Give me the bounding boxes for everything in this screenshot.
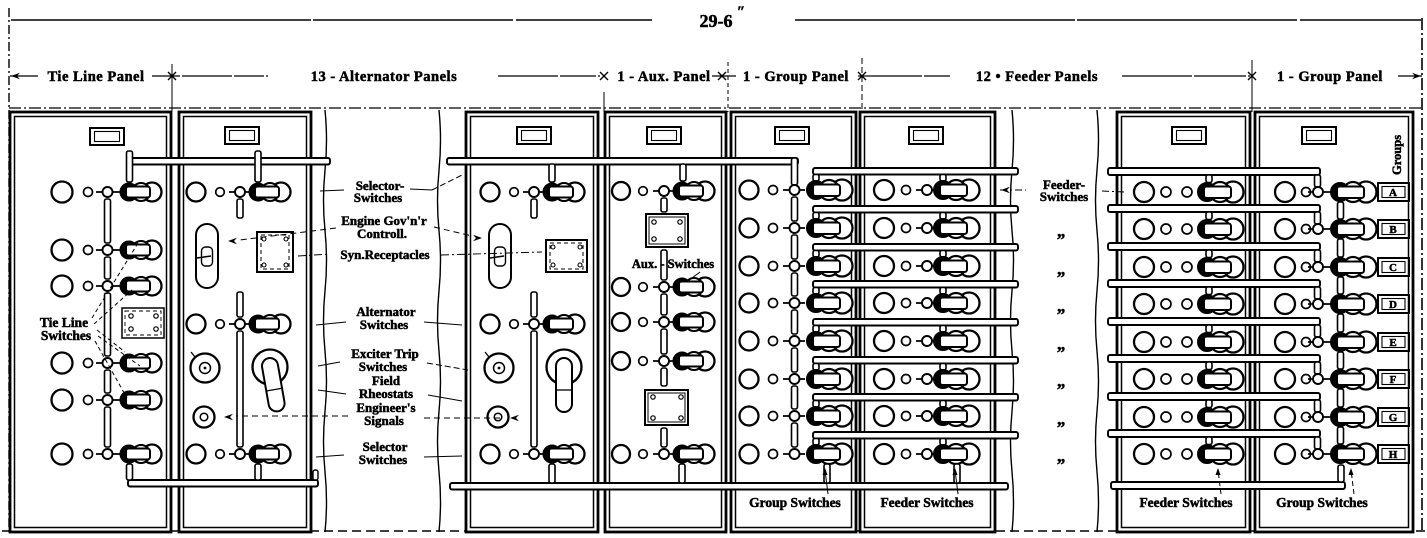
svg-text:″: ″ (737, 4, 745, 20)
svg-text:Group Switches: Group Switches (749, 495, 841, 510)
svg-text:Feeder Switches: Feeder Switches (880, 495, 973, 510)
svg-text:E: E (1389, 337, 1396, 349)
svg-text:”: ” (1057, 268, 1066, 287)
svg-text:Groups: Groups (1390, 135, 1404, 175)
svg-text:D: D (1389, 299, 1397, 311)
svg-text:1 - Aux. Panel: 1 - Aux. Panel (617, 69, 710, 85)
svg-text:Switches: Switches (1040, 189, 1088, 204)
svg-text:Controll.: Controll. (357, 226, 407, 241)
svg-text:”: ” (1057, 380, 1066, 399)
svg-text:”: ” (1057, 230, 1066, 249)
svg-text:12 • Feeder Panels: 12 • Feeder Panels (976, 69, 1098, 85)
svg-text:H: H (1389, 449, 1398, 461)
svg-text:G: G (1389, 412, 1398, 424)
svg-text:Switches: Switches (359, 452, 407, 467)
svg-text:Feeder Switches: Feeder Switches (1139, 495, 1232, 510)
svg-text:Switches: Switches (41, 328, 91, 343)
svg-text:Tie Line Panel: Tie Line Panel (48, 69, 145, 85)
svg-text:Syn.Receptacles: Syn.Receptacles (340, 247, 429, 262)
svg-text:B: B (1389, 224, 1397, 236)
svg-text:”: ” (1057, 343, 1066, 362)
svg-text:Group Switches: Group Switches (1276, 495, 1368, 510)
svg-text:”: ” (1057, 455, 1066, 474)
svg-text:”: ” (1057, 305, 1066, 324)
svg-text:Switches: Switches (359, 359, 407, 374)
svg-text:C: C (1389, 262, 1397, 274)
svg-text:A: A (1389, 187, 1397, 199)
svg-text:1 - Group Panel: 1 - Group Panel (1277, 69, 1383, 85)
svg-text:Aux. - Switches: Aux. - Switches (632, 257, 714, 271)
svg-text:”: ” (1057, 418, 1066, 437)
svg-text:Switches: Switches (354, 190, 402, 205)
svg-text:Switches: Switches (360, 317, 408, 332)
svg-text:Rheostats: Rheostats (359, 386, 413, 401)
svg-text:29-6: 29-6 (700, 11, 733, 31)
svg-text:F: F (1390, 374, 1397, 386)
svg-text:Signals: Signals (364, 413, 404, 428)
svg-text:13 - Alternator Panels: 13 - Alternator Panels (311, 69, 457, 85)
svg-text:1 - Group Panel: 1 - Group Panel (743, 69, 849, 85)
